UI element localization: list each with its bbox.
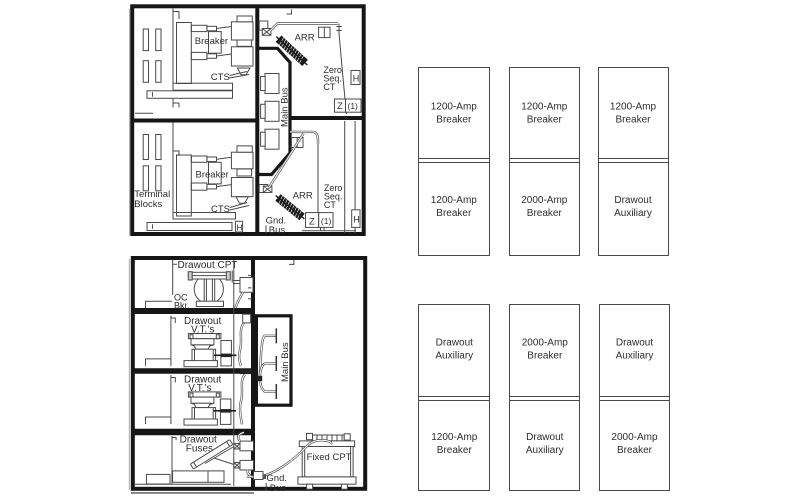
svg-text:Drawout CPT: Drawout CPT bbox=[178, 260, 238, 271]
svg-text:Auxiliary: Auxiliary bbox=[526, 445, 564, 456]
svg-text:(1): (1) bbox=[321, 216, 332, 226]
svg-text:Z: Z bbox=[309, 216, 315, 227]
svg-text:1200-Amp: 1200-Amp bbox=[610, 102, 657, 113]
svg-text:1200-Amp: 1200-Amp bbox=[431, 102, 478, 113]
svg-text:1200-Amp: 1200-Amp bbox=[521, 102, 568, 113]
svg-text:Breaker: Breaker bbox=[436, 208, 472, 219]
svg-text:Auxiliary: Auxiliary bbox=[435, 350, 473, 361]
svg-text:ARR: ARR bbox=[293, 190, 313, 201]
svg-text:Breaker: Breaker bbox=[527, 350, 563, 361]
svg-text:Drawout: Drawout bbox=[616, 338, 653, 349]
svg-text:H: H bbox=[353, 74, 360, 84]
svg-text:1200-Amp: 1200-Amp bbox=[431, 195, 478, 206]
svg-text:Breaker: Breaker bbox=[436, 114, 472, 125]
svg-text:CT: CT bbox=[324, 200, 336, 210]
svg-text:H: H bbox=[353, 215, 360, 225]
svg-text:2000-Amp: 2000-Amp bbox=[522, 338, 569, 349]
svg-text:CTS: CTS bbox=[211, 72, 230, 83]
svg-text:Main Bus: Main Bus bbox=[280, 342, 291, 382]
svg-text:Auxiliary: Auxiliary bbox=[614, 208, 652, 219]
svg-text:Drawout: Drawout bbox=[436, 338, 473, 349]
svg-text:Fixed CPT: Fixed CPT bbox=[307, 452, 352, 463]
svg-text:ARR: ARR bbox=[295, 32, 315, 43]
svg-text:Drawout: Drawout bbox=[614, 195, 651, 206]
svg-text:Z: Z bbox=[337, 101, 343, 112]
svg-text:Auxiliary: Auxiliary bbox=[616, 350, 654, 361]
svg-text:Breaker: Breaker bbox=[527, 208, 563, 219]
svg-text:H: H bbox=[236, 222, 242, 232]
svg-text:2000-Amp: 2000-Amp bbox=[521, 195, 568, 206]
svg-text:(1): (1) bbox=[348, 101, 359, 111]
svg-text:Breaker: Breaker bbox=[196, 170, 229, 181]
svg-text:Main Bus: Main Bus bbox=[280, 87, 291, 127]
svg-text:Breaker: Breaker bbox=[195, 36, 228, 47]
svg-text:CT: CT bbox=[323, 82, 335, 92]
svg-text:2000-Amp: 2000-Amp bbox=[611, 432, 658, 443]
svg-text:CTS: CTS bbox=[211, 204, 230, 215]
svg-text:Blocks: Blocks bbox=[134, 199, 162, 210]
svg-text:1200-Amp: 1200-Amp bbox=[431, 432, 478, 443]
svg-text:Breaker: Breaker bbox=[527, 114, 563, 125]
svg-text:Bkr.: Bkr. bbox=[174, 300, 190, 310]
svg-text:Bus: Bus bbox=[270, 483, 287, 494]
svg-text:Breaker: Breaker bbox=[617, 445, 653, 456]
svg-text:Breaker: Breaker bbox=[437, 445, 473, 456]
svg-text:Breaker: Breaker bbox=[615, 114, 651, 125]
svg-text:Drawout: Drawout bbox=[526, 432, 563, 443]
svg-text:Bus: Bus bbox=[269, 225, 286, 236]
